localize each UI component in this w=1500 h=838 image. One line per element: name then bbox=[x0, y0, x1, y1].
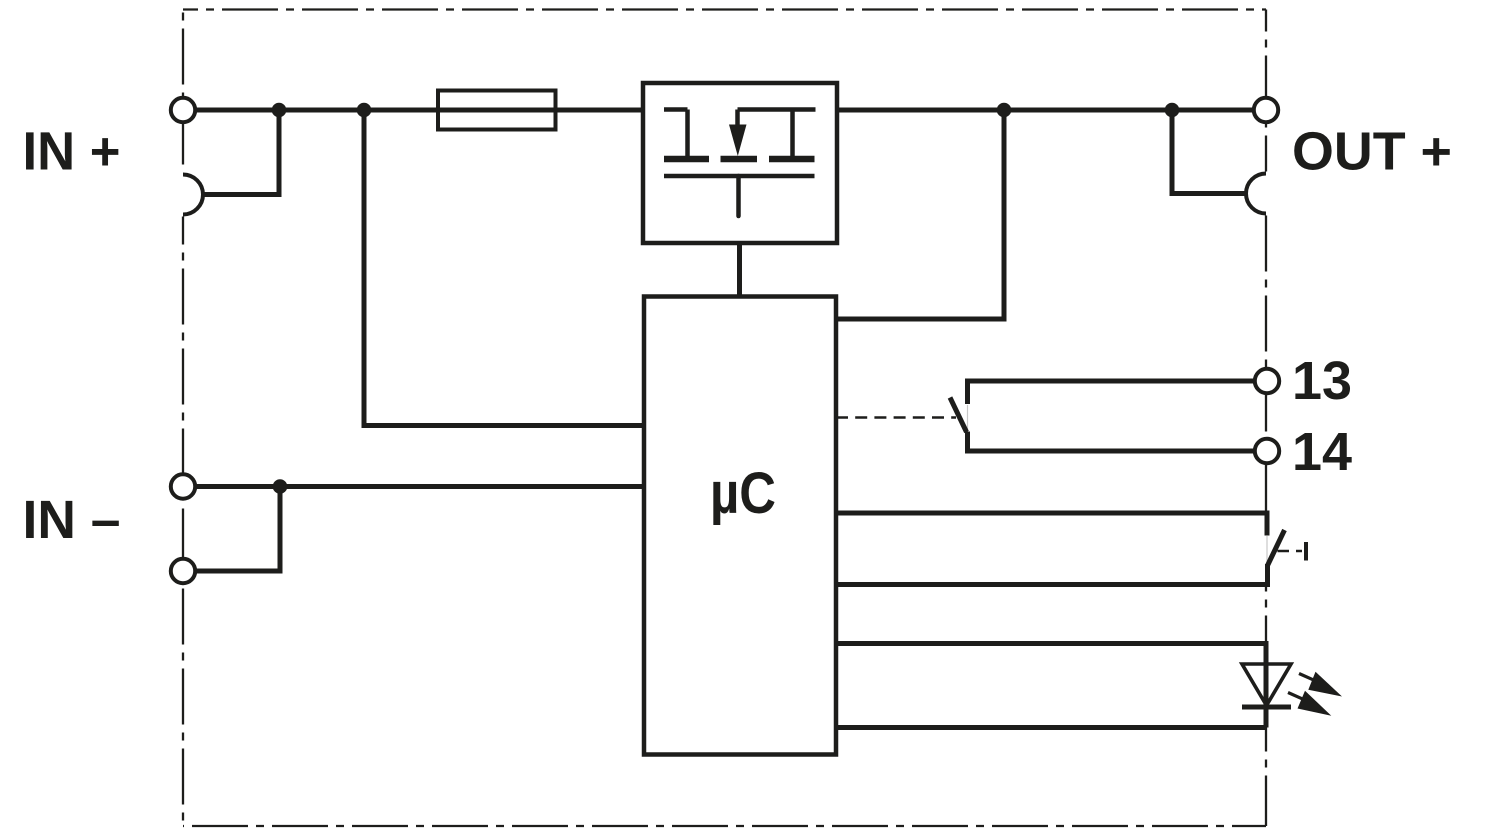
svg-text:µC: µC bbox=[710, 461, 776, 526]
svg-text:OUT +: OUT + bbox=[1292, 122, 1452, 182]
svg-text:13: 13 bbox=[1292, 351, 1352, 411]
svg-text:14: 14 bbox=[1292, 422, 1352, 482]
svg-text:IN +: IN + bbox=[23, 122, 121, 182]
svg-text:IN –: IN – bbox=[23, 490, 121, 550]
